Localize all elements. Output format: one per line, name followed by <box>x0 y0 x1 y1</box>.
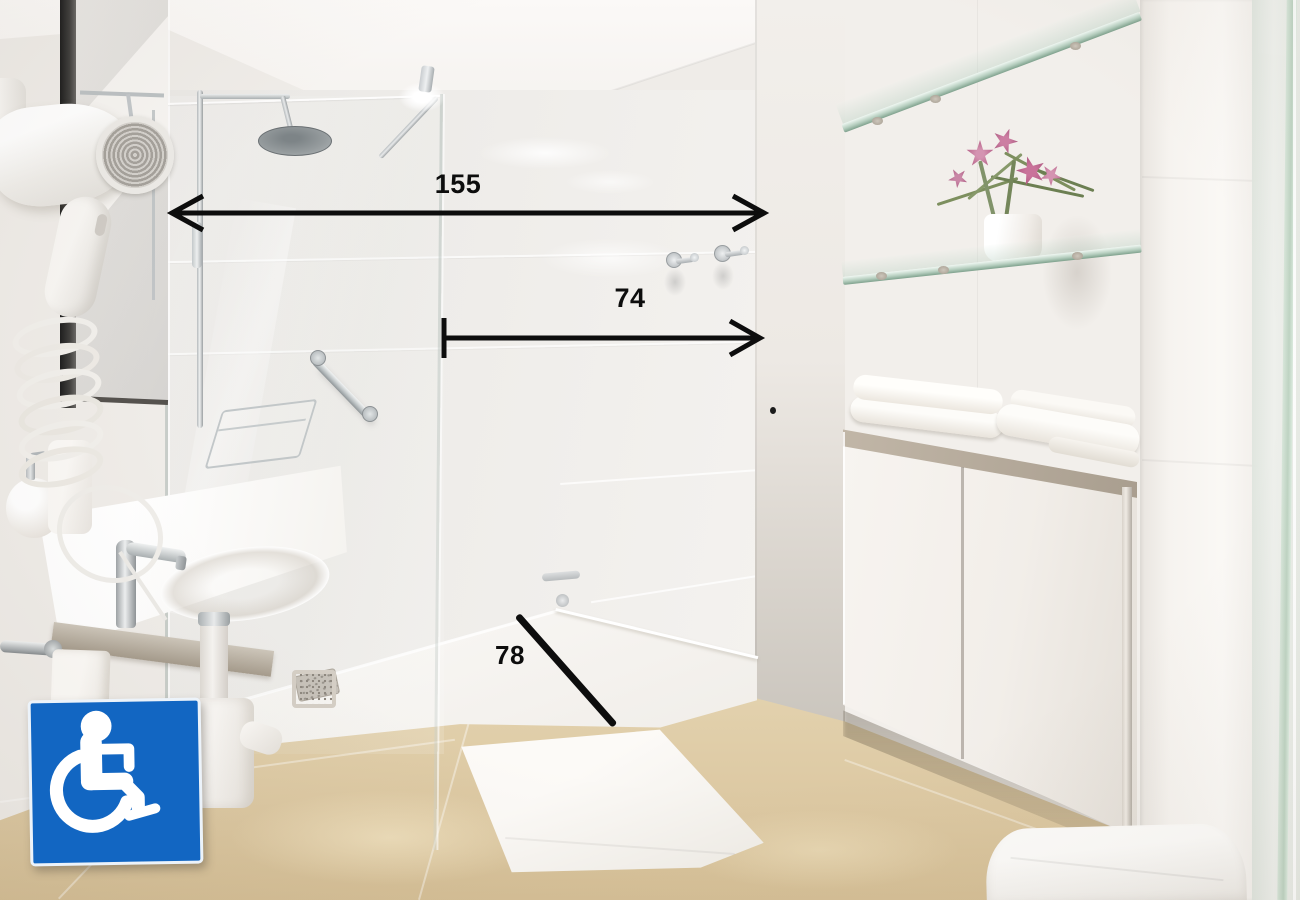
measure-label-78: 78 <box>478 640 542 671</box>
measure-arrow-74 <box>436 315 770 361</box>
bathroom-photo: 155 74 78 <box>0 0 1300 900</box>
measure-label-155: 155 <box>418 169 498 200</box>
accessibility-sign <box>28 698 204 867</box>
wheelchair-icon <box>31 701 195 858</box>
measure-label-74: 74 <box>598 283 662 314</box>
